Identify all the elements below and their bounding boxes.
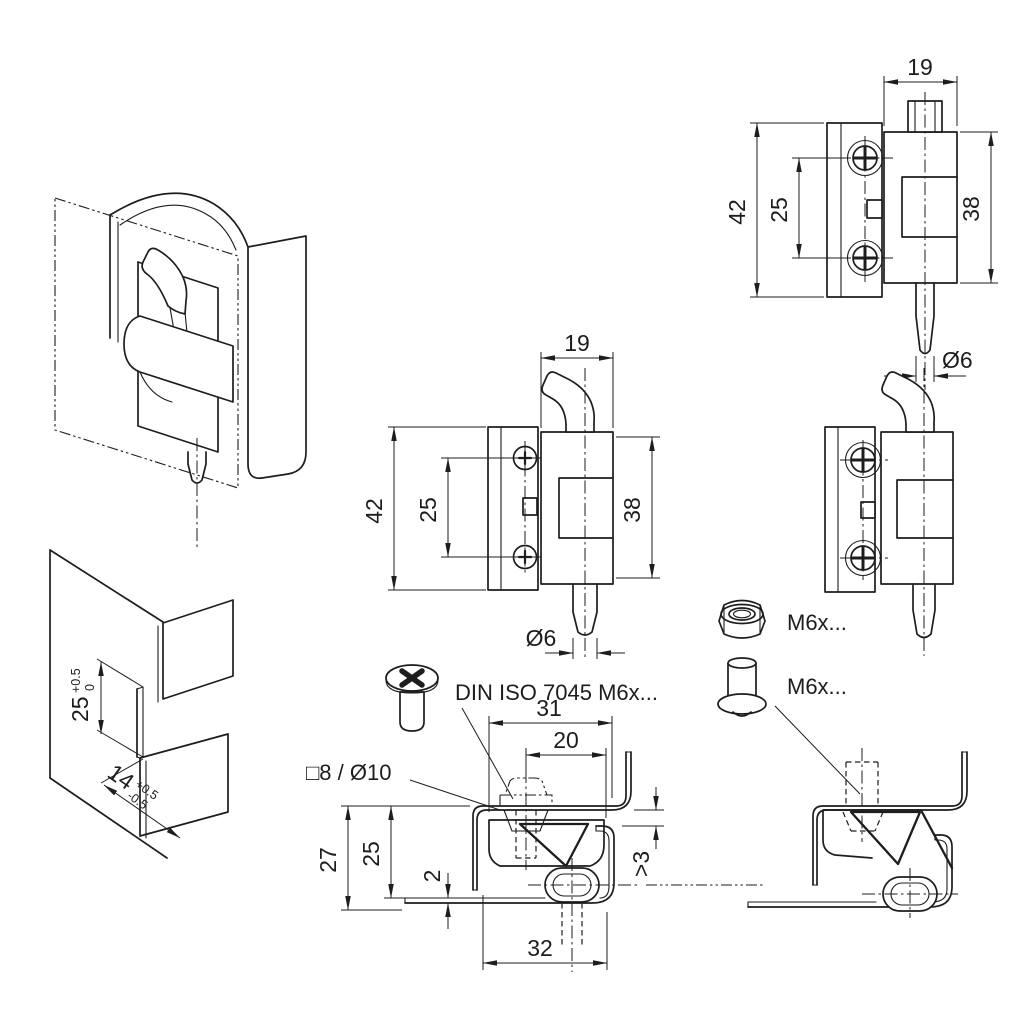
dim-sheet-thickness-2: 2 xyxy=(419,870,455,929)
hidden-countersink xyxy=(843,812,883,831)
frame-profile-face xyxy=(248,236,306,478)
svg-text:42: 42 xyxy=(361,498,387,524)
dim-bottom-width-32: 32 xyxy=(483,895,607,970)
dim-offset-height-25: 25 xyxy=(358,806,470,898)
frame-top-bend xyxy=(110,193,248,247)
svg-text:25: 25 xyxy=(766,197,792,223)
bracket-top-flange xyxy=(163,600,233,699)
door-sheet xyxy=(813,752,962,885)
view-front-hook: 19 42 25 38 Ø6 xyxy=(361,330,660,660)
section-wedge xyxy=(851,812,920,864)
adjust-slot xyxy=(867,200,882,218)
pin-leader-line xyxy=(775,706,860,794)
hinge-hook xyxy=(882,372,934,432)
drawing-canvas: 25 +0.5 0 14 +0.5 -0.5 xyxy=(0,0,1024,1024)
screw-leader-line xyxy=(462,708,513,799)
svg-text:31: 31 xyxy=(536,695,562,721)
svg-text:25: 25 xyxy=(358,841,384,867)
svg-text:42: 42 xyxy=(724,199,750,225)
view-iso-assembly xyxy=(55,193,306,548)
svg-text:Ø6: Ø6 xyxy=(526,625,557,651)
hinge-technical-drawing: 25 +0.5 0 14 +0.5 -0.5 xyxy=(0,0,1024,1024)
hinge-body-section xyxy=(823,810,922,858)
door-sheet xyxy=(473,752,626,890)
svg-text:27: 27 xyxy=(315,847,341,873)
svg-text:38: 38 xyxy=(958,196,984,222)
section-wedge xyxy=(520,824,588,866)
dim-tol-lower: 0 xyxy=(83,684,97,691)
dim-tol-upper: +0.5 xyxy=(69,668,83,693)
view-section-open xyxy=(748,748,967,918)
dim-pin-dia: Ø6 xyxy=(526,625,625,659)
pin-spec-label: M6x... xyxy=(787,674,847,699)
view-front-pin-up: 19 42 25 38 Ø6 xyxy=(724,54,998,390)
dim-text-cutout: 25 xyxy=(67,696,93,722)
hinge-leaf xyxy=(884,132,957,283)
dim-leaf-height-38: 38 xyxy=(616,437,660,578)
nut-spec-label: M6x... xyxy=(787,610,847,635)
svg-text:19: 19 xyxy=(907,54,933,80)
hole-spec-label: □8 / Ø10 xyxy=(306,760,391,785)
svg-text:2: 2 xyxy=(419,870,445,883)
svg-text:20: 20 xyxy=(553,727,579,753)
nut-icon xyxy=(719,601,765,639)
view-iso-bracket: 25 +0.5 0 14 +0.5 -0.5 xyxy=(50,550,233,858)
svg-text:32: 32 xyxy=(527,935,553,961)
svg-text:38: 38 xyxy=(619,497,645,523)
dim-screw-offset-20: 20 xyxy=(526,727,606,818)
hinge-hook xyxy=(542,372,594,432)
pin-icon xyxy=(718,658,766,716)
screw-icon xyxy=(386,665,438,731)
dim-gap-3: >3 xyxy=(622,787,664,877)
hinge-leaf xyxy=(541,432,613,584)
svg-text:19: 19 xyxy=(564,330,590,356)
view-section-closed: 31 20 27 25 2 > xyxy=(315,695,764,972)
dim-leaf-height-38: 38 xyxy=(958,132,998,283)
svg-text:Ø6: Ø6 xyxy=(942,347,973,373)
svg-text:25: 25 xyxy=(415,497,441,523)
dim-overall-height-27: 27 xyxy=(315,806,470,910)
svg-text:>3: >3 xyxy=(628,851,654,877)
dim-cutout-height: 25 +0.5 0 xyxy=(67,659,143,757)
hinge-leaf xyxy=(881,432,953,584)
